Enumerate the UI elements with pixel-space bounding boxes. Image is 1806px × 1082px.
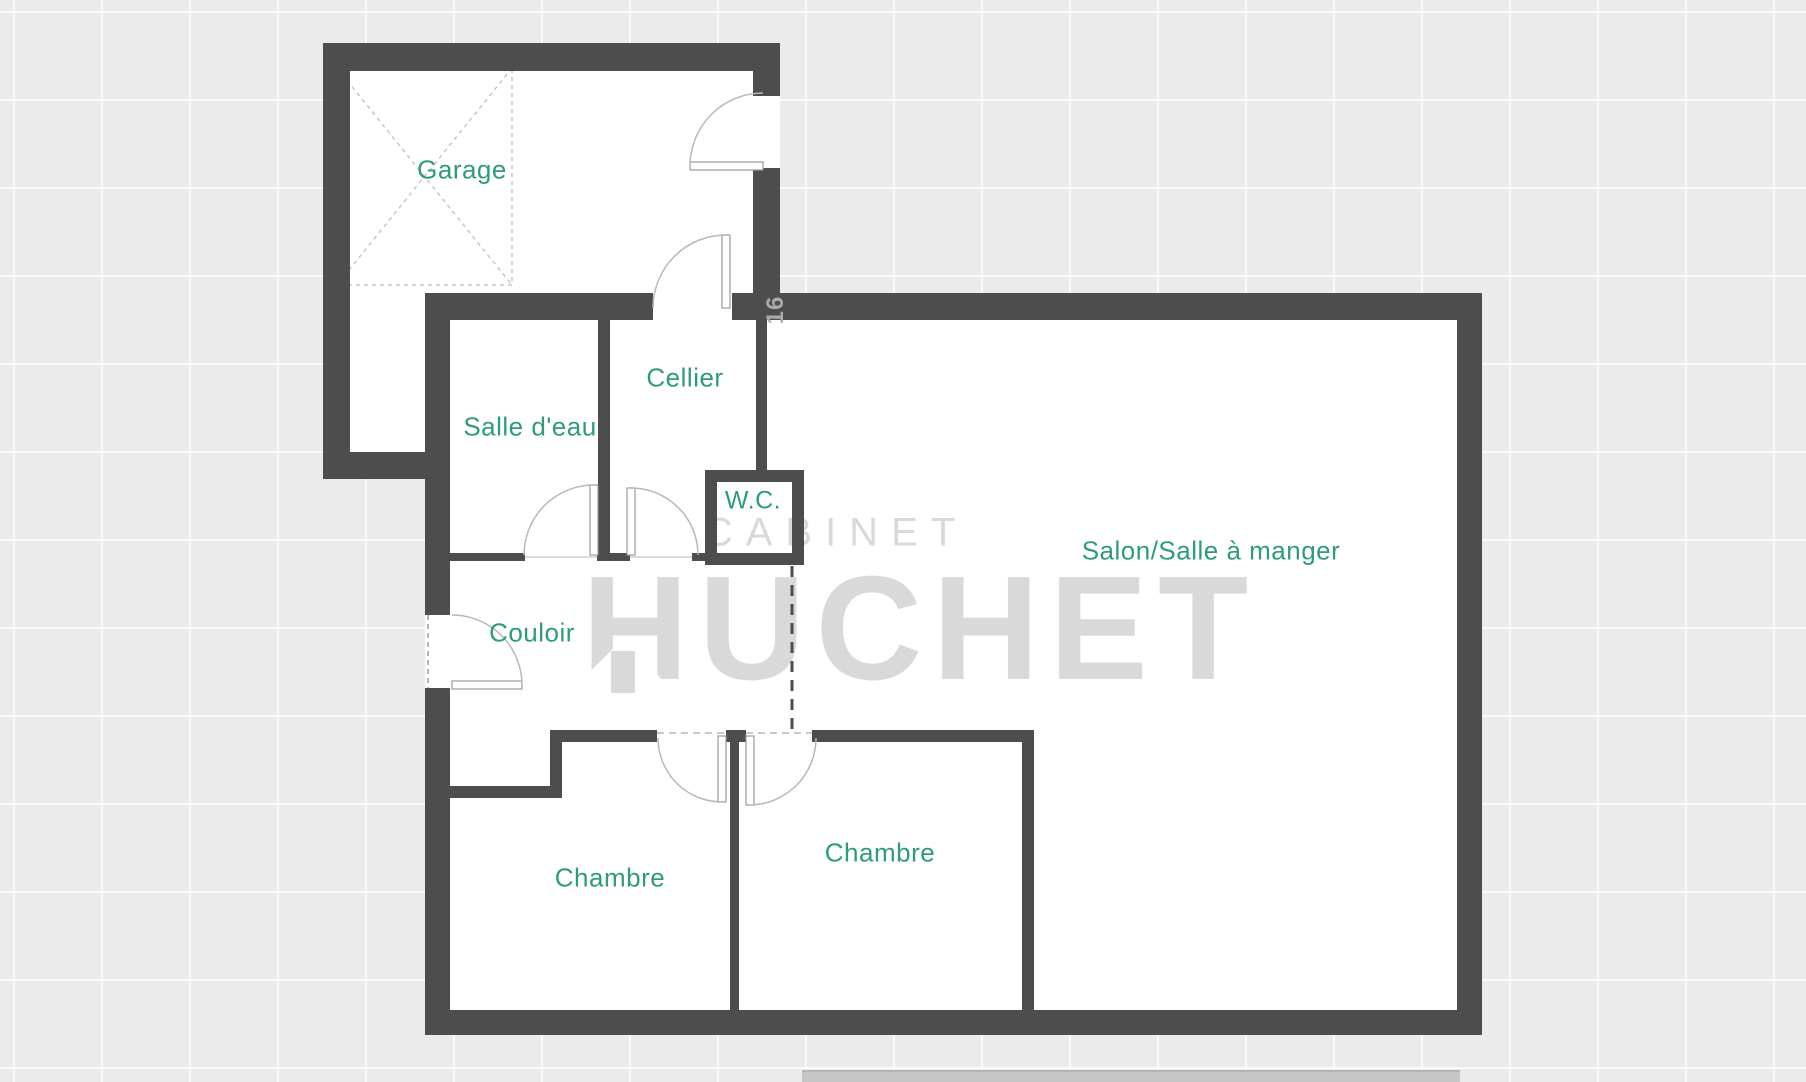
room-label-salle-deau: Salle d'eau: [463, 412, 596, 443]
bottom-partial-bar: [802, 1070, 1460, 1082]
dimension-label: 16: [762, 296, 790, 325]
room-label-cellier: Cellier: [646, 363, 723, 394]
room-label-wc: W.C.: [725, 487, 781, 516]
room-label-couloir: Couloir: [489, 618, 575, 649]
labels-layer: Garage Salle d'eau Cellier W.C. Couloir …: [0, 0, 1806, 1080]
room-label-chambre-2: Chambre: [825, 838, 935, 869]
room-label-garage: Garage: [417, 155, 507, 186]
room-label-salon: Salon/Salle à manger: [1082, 536, 1341, 567]
room-label-chambre-1: Chambre: [555, 863, 665, 894]
